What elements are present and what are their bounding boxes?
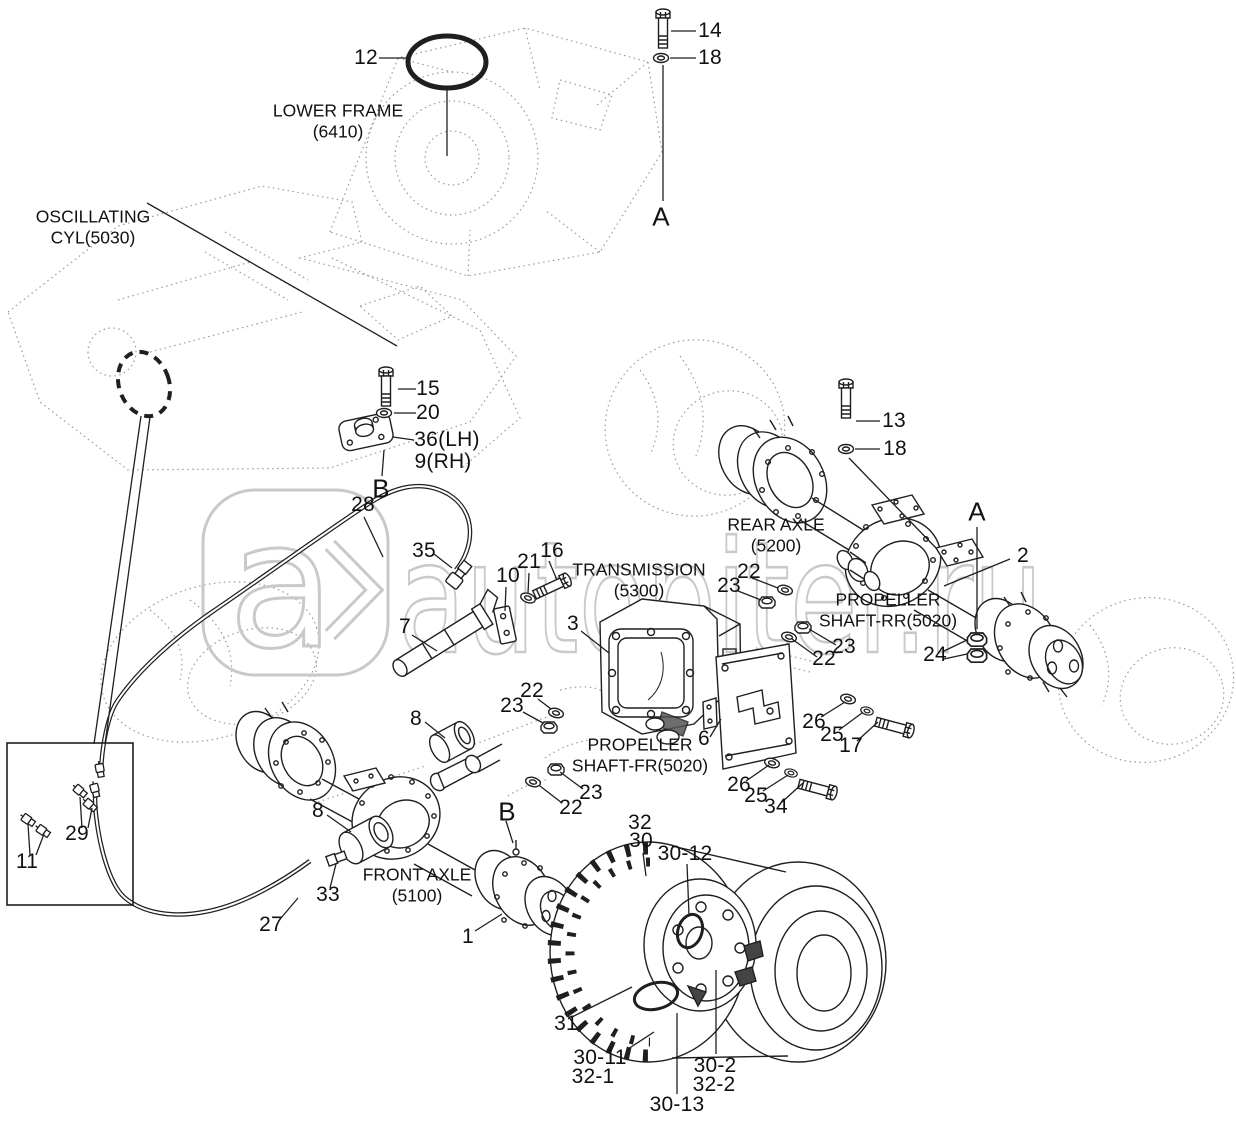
section-marker-b-lower: B (498, 797, 516, 828)
callout-22-fr-lower: 22 (559, 796, 583, 820)
callout-23-fr-upper: 23 (500, 694, 524, 718)
label-line: (6410) (273, 121, 403, 142)
callout-9-rh: 9(RH) (415, 450, 472, 474)
callout-2: 2 (1017, 544, 1029, 568)
label-line: OSCILLATING (36, 206, 150, 227)
callout-34: 34 (764, 795, 788, 819)
callout-36-lh: 36(LH) (414, 428, 479, 452)
fitting-33-part (326, 850, 347, 866)
callout-8-low: 8 (312, 799, 324, 823)
section-marker-a-top: A (652, 202, 670, 233)
callout-35: 35 (412, 539, 436, 563)
label-line: REAR AXLE (727, 514, 824, 535)
label-line: CYL(5030) (36, 227, 150, 248)
callout-12: 12 (354, 46, 378, 70)
label-line: SHAFT-RR(5020) (819, 610, 957, 631)
callout-7: 7 (399, 615, 411, 639)
callout-28: 28 (351, 493, 375, 517)
callout-6: 6 (698, 727, 710, 751)
dashed-callout-ellipse (109, 344, 179, 423)
callout-30-13: 30-13 (650, 1093, 705, 1117)
callout-22-rear-lower: 22 (812, 647, 836, 671)
callout-16: 16 (540, 539, 564, 563)
front-axle-part (226, 702, 585, 944)
label-line: (5300) (572, 580, 705, 601)
callout-18-top: 18 (698, 46, 722, 70)
callout-8-mid: 8 (410, 707, 422, 731)
callout-14: 14 (698, 19, 722, 43)
label-line: (5100) (363, 885, 472, 906)
watermark-logo-letter: a (228, 485, 335, 688)
callout-23-rear-left: 23 (717, 574, 741, 598)
wheel-assembly-part (550, 842, 886, 1062)
watermark-chevron-icon (330, 545, 374, 635)
label-propeller-shaft-rr: PROPELLER SHAFT-RR(5020) (819, 589, 957, 630)
callout-27: 27 (259, 913, 283, 937)
label-line: PROPELLER (819, 589, 957, 610)
label-rear-axle: REAR AXLE (5200) (727, 514, 824, 555)
callout-17: 17 (839, 734, 863, 758)
callout-1: 1 (462, 925, 474, 949)
section-marker-a-right: A (968, 497, 986, 528)
label-line: (5200) (727, 535, 824, 556)
callout-3: 3 (567, 612, 579, 636)
callout-31: 31 (554, 1012, 578, 1036)
label-line: FRONT AXLE (363, 864, 472, 885)
callout-20: 20 (416, 401, 440, 425)
callout-21: 21 (517, 550, 541, 574)
parts-diagram-page: a autopiter.ru (0, 0, 1236, 1136)
label-propeller-shaft-fr: PROPELLER SHAFT-FR(5020) (572, 734, 708, 775)
label-transmission: TRANSMISSION (5300) (572, 559, 705, 600)
label-oscillating-cyl: OSCILLATING CYL(5030) (36, 206, 150, 247)
label-line: SHAFT-FR(5020) (572, 755, 708, 776)
bracket-part (703, 644, 796, 769)
label-line: TRANSMISSION (572, 559, 705, 580)
label-lower-frame: LOWER FRAME (6410) (273, 100, 403, 141)
callout-18-rear: 18 (883, 437, 907, 461)
callout-11: 11 (16, 850, 38, 874)
callout-30: 30 (629, 829, 653, 853)
callout-15: 15 (416, 377, 440, 401)
hose-27 (95, 792, 310, 914)
label-line: PROPELLER (572, 734, 708, 755)
callout-32-1: 32-1 (572, 1065, 615, 1089)
callout-24: 24 (923, 643, 947, 667)
label-line: LOWER FRAME (273, 100, 403, 121)
callout-30-12: 30-12 (658, 842, 713, 866)
callout-29: 29 (65, 822, 89, 846)
callout-13: 13 (882, 409, 906, 433)
callout-33: 33 (316, 883, 340, 907)
o-ring-part (408, 36, 486, 88)
label-front-axle: FRONT AXLE (5100) (363, 864, 472, 905)
